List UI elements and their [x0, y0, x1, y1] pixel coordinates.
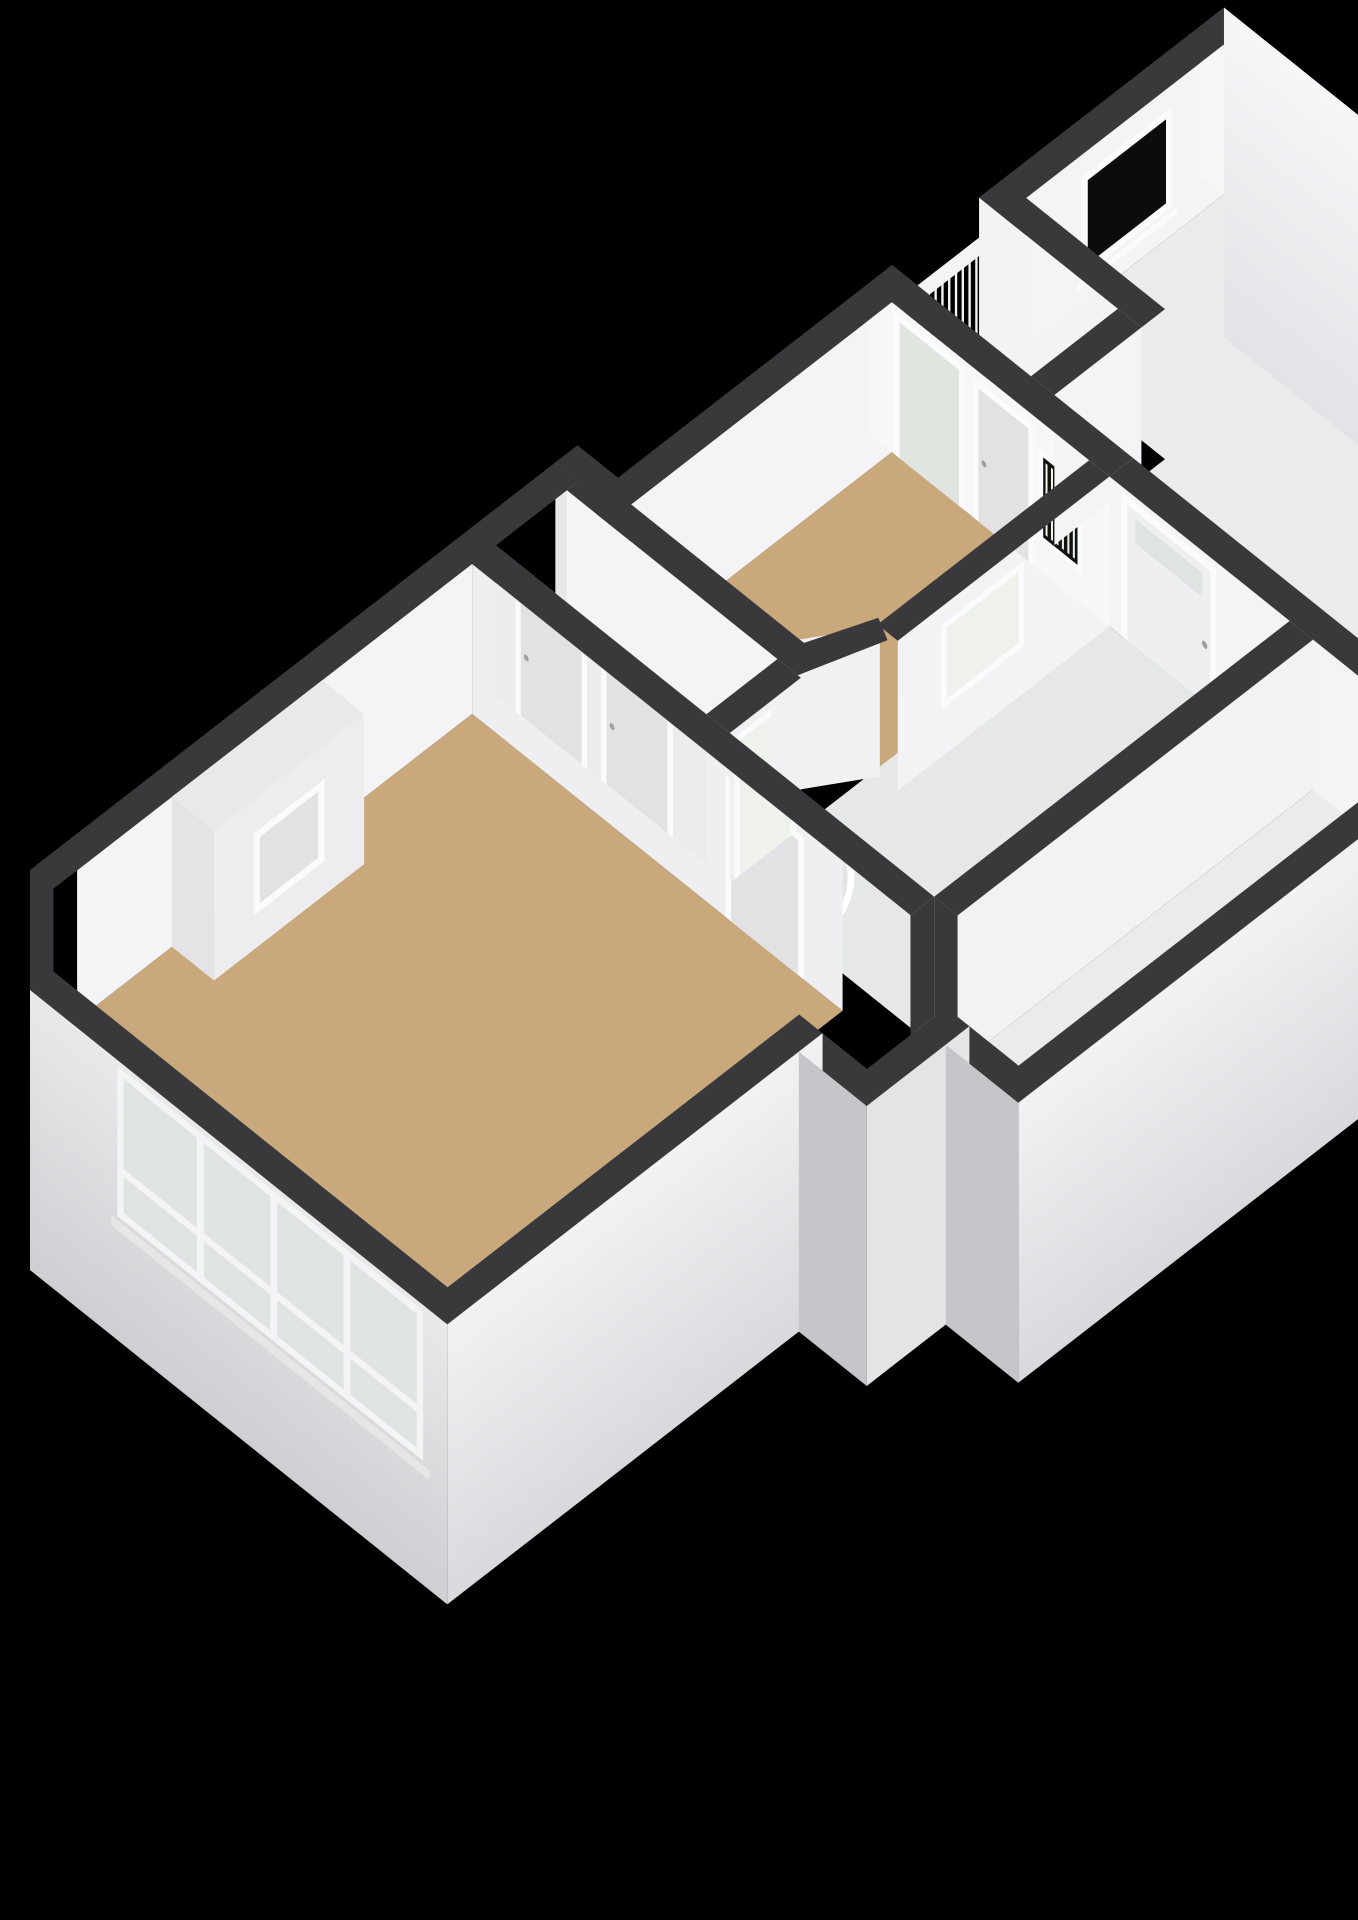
- wall-face: [799, 1052, 867, 1386]
- wall-face: [946, 1045, 1019, 1383]
- floorplan-canvas: [0, 0, 1358, 1920]
- wall-top-step: [30, 870, 53, 1009]
- window-mullion: [270, 1197, 277, 1337]
- wall-top-step: [910, 897, 934, 1035]
- window-mullion: [344, 1255, 351, 1395]
- window-mullion: [197, 1138, 204, 1278]
- notch-west-exterior: [799, 1052, 867, 1386]
- wall-top-step: [934, 897, 957, 1036]
- floorplan-3d-render: [0, 0, 1358, 1920]
- right-front-west-exterior: [946, 1045, 1019, 1383]
